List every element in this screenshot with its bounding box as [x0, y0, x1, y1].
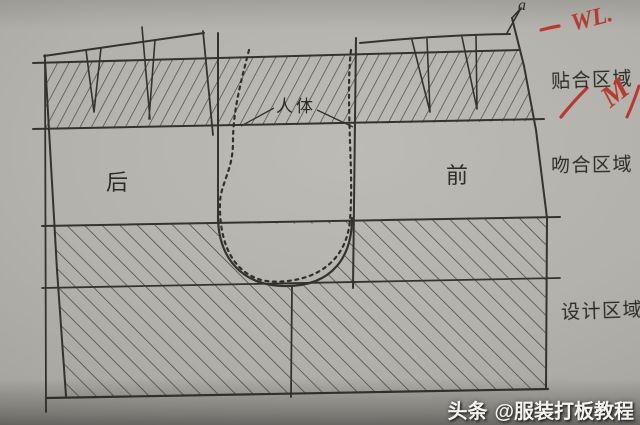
watermark: 头条@服装打板教程	[447, 395, 634, 424]
watermark-handle: @服装打板教程	[494, 401, 634, 423]
back-piece-label: 后	[106, 165, 128, 197]
watermark-brand: 头条	[447, 401, 487, 423]
point-a-label: a	[518, 0, 526, 15]
design-zone-divider	[291, 287, 292, 397]
fitting-zone-hatch	[45, 51, 534, 129]
front-waist-curve	[360, 34, 510, 43]
trouser-pattern-diagram	[0, 0, 640, 425]
red-dash-stroke	[541, 26, 559, 30]
left-frame-vertical	[45, 55, 46, 412]
zone-label-matching: 吻合区域	[551, 149, 633, 177]
pattern-draft-photo: 贴合区域 吻合区域 设计区域 后 前 人体 a WL. M 头条@服装打板教程	[0, 0, 640, 425]
back-waist-slant	[44, 33, 204, 56]
body-label: 人体	[276, 92, 316, 117]
zone-label-design: 设计区域	[561, 295, 640, 325]
front-piece-label: 前	[446, 158, 468, 190]
design-zone-hatch	[54, 218, 546, 397]
